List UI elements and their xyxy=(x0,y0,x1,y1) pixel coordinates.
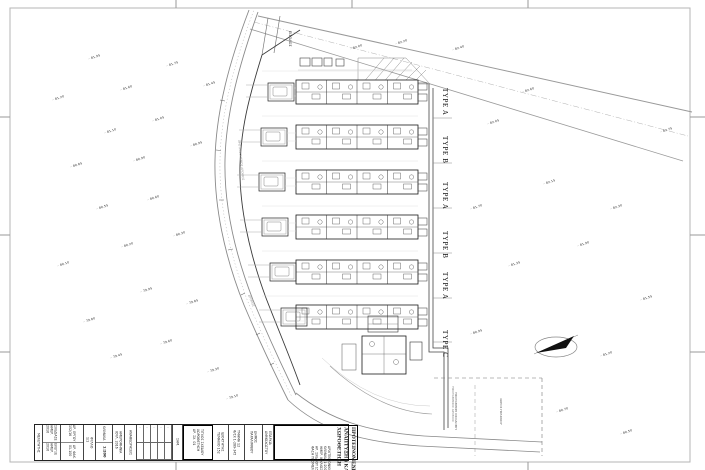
revision-cell xyxy=(151,443,158,461)
title-block-text: ΦΥΛΛΟ 1/1 xyxy=(85,437,93,448)
site-plan-canvas: TYPE ATYPE BTYPE ATYPE BTYPE ATYPE C ΕΙΣ… xyxy=(0,0,705,470)
road-label-west: ΠΡΟΤΕΙΝΟΜΕΝΟΣ ΔΡΟΜΟΣ xyxy=(237,140,245,181)
title-block-cell: ΙΔΙΟΚΤΗΤΗΣ ΤΕΜΑΧΙΟ 152 xyxy=(213,425,229,460)
title-block-cell: ΔΗΜΟΣ ΠΑΡΑΛΙΜΝΙΟΥ xyxy=(245,425,263,460)
title-block-text: ΤΜΗΜΑ 12 Φ/ΣΧ 1-289-345 xyxy=(232,430,240,455)
title-block-cell: ΑΡ. ΕΡΓΟΥ 152/16ΑΡ. ΦΑΚ. 01-100 xyxy=(61,425,84,460)
drawing-sheet: TYPE ATYPE BTYPE ATYPE BTYPE ATYPE C ΕΙΣ… xyxy=(0,0,705,470)
title-block-text: 1:200 xyxy=(102,446,107,457)
building-row xyxy=(240,206,427,239)
title-block-cell: ΤΜΗΜΑ 12 Φ/ΣΧ 1-289-345 xyxy=(229,425,245,460)
title-block-text: ΔΗΜΟΣ ΠΑΡΑΛΙΜΝΙΟΥ xyxy=(249,431,257,453)
title-block: ΜΕΛΕΤΗΤΗΣΣΧΕΔΙΑΣΕ ΗΜΕΡ. 2016ΕΛΕΓΞΕ ΗΜΕΡ.… xyxy=(34,424,349,461)
revision-cell xyxy=(158,443,165,461)
building-type-label: TYPE C xyxy=(441,330,449,358)
title-block-notes: ΑΡΧΙΤΕΚΤΟΝΙΚΗ ΜΕΛΕΤΗ ΚΛΙΜΑΚΑ 1:200 ΗΜΕΡ.… xyxy=(310,446,331,470)
title-block-cell: ΑΡΧΙΤΕΚΤΟΝΙΚΗ ΜΕΛΕΤΗ ΚΛΙΜΑΚΑ 1:200 ΗΜΕΡ.… xyxy=(274,425,358,460)
title-block-cell: ΤΙΤΛΟΣ ΣΧΕΔΙΟΥ ΧΩΡΟΘΕΤΗΣΗ ΑΡ. ΣΧ. 01 xyxy=(183,425,213,460)
title-block-text: ΑΡ. ΕΡΓΟΥ 152/16 xyxy=(68,425,76,441)
revision-cell: - xyxy=(151,425,158,443)
title-block-cell: ΚΛΙΜΑΚΑ1:200 xyxy=(96,425,113,460)
title-block-text: ΕΠΑΡΧΙΑ ΑΜΜΟΧΩΣΤΟΥ xyxy=(264,431,272,454)
title-block-text: ΑΝΑΘΕΩΡΗΣΕΙΣ xyxy=(128,430,132,455)
road-west xyxy=(215,10,296,400)
title-block-cell: ΜΕΛΕΤΗΤΗΣ xyxy=(35,425,43,460)
revision-cell: - xyxy=(158,425,165,443)
title-block-text: ΤΙΤΛΟΣ ΣΧΕΔΙΟΥ ΧΩΡΟΘΕΤΗΣΗ ΑΡ. ΣΧ. 01 xyxy=(192,429,204,455)
title-block-text: ΚΛΙΜΑΚΑ xyxy=(102,426,106,440)
building-rows xyxy=(237,71,427,329)
north-arrow-icon xyxy=(534,335,578,357)
title-block-text: ΜΕΛΕΤΗΤΗΣ xyxy=(36,433,40,453)
revision-cell: - xyxy=(165,425,172,443)
revision-cell: - xyxy=(137,425,144,443)
title-block-text: ΙΔΙΟΚΤΗΤΗΣ ΤΕΜΑΧΙΟ 152 xyxy=(216,432,224,454)
revision-cell xyxy=(144,443,151,461)
title-block-cell: ΣΧΕΔΙΑΣΕ ΗΜΕΡ. 2016ΕΛΕΓΞΕ ΗΜΕΡ. 2016 xyxy=(43,425,61,460)
type-labels: TYPE ATYPE BTYPE ATYPE BTYPE ATYPE C xyxy=(441,88,449,358)
title-block-text: ΗΜΕΡΟΜΗΝΙΑ ΙΟΥΛ. 2016 xyxy=(114,431,122,453)
title-block-text: ΑΡ. ΦΑΚ. 01-100 xyxy=(68,445,76,459)
road-label-west2: ΔΡΟΜΟΣ xyxy=(247,294,256,308)
title-block-text: ΣΗΜ. xyxy=(175,438,179,446)
building-row xyxy=(248,251,427,284)
title-block-cell: ΗΜΕΡΟΜΗΝΙΑ ΙΟΥΛ. 2016 xyxy=(113,425,125,460)
building-row xyxy=(259,296,427,329)
plot-label-green: ΧΩΡΟΣ ΠΡΑΣΙΝΟΥ xyxy=(499,398,503,425)
title-block-cell: ΕΠΑΡΧΙΑ ΑΜΜΟΧΩΣΤΟΥ xyxy=(263,425,274,460)
revision-cell xyxy=(137,443,144,461)
title-block-cell: ΦΥΛΛΟ 1/1 xyxy=(84,425,96,460)
building-type-label: TYPE A xyxy=(441,182,449,210)
revision-cell: - xyxy=(144,425,151,443)
title-block-cell: ΣΗΜ. xyxy=(173,425,183,460)
drawing-title: ΠΡΟΤΕΙΝΟΜΕΝΗ ΟΙΚΙΣΤΙΚΗ ΑΝΑΠΤΥΞΗ 6 ΚΑΤΟΙΚ… xyxy=(334,427,356,470)
revision-cell xyxy=(165,443,172,461)
building-row xyxy=(237,161,427,194)
building-row xyxy=(239,116,427,149)
dashed-plot xyxy=(434,378,542,456)
title-block-text: ΣΧΕΔΙΑΣΕ ΗΜΕΡ. 2016 xyxy=(45,425,57,442)
entrance-label: ΕΙΣΟΔΟΣ xyxy=(288,31,292,47)
building-row xyxy=(246,71,427,104)
building-type-label: TYPE A xyxy=(441,88,449,116)
title-block-cell: ----- xyxy=(137,425,173,460)
title-block-text: ΕΛΕΓΞΕ ΗΜΕΡ. 2016 xyxy=(45,443,57,460)
building-type-label: TYPE B xyxy=(441,136,449,164)
title-block-cell: ΑΝΑΘΕΩΡΗΣΕΙΣ xyxy=(125,425,137,460)
building-type-label: TYPE B xyxy=(441,231,449,259)
entrance-utilities xyxy=(298,58,412,70)
plot-label-existing: ΥΦΙΣΤΑΜΕΝΗ ΟΙΚΟΔΟΜΗ xyxy=(454,392,458,430)
building-type-label: TYPE A xyxy=(441,272,449,300)
